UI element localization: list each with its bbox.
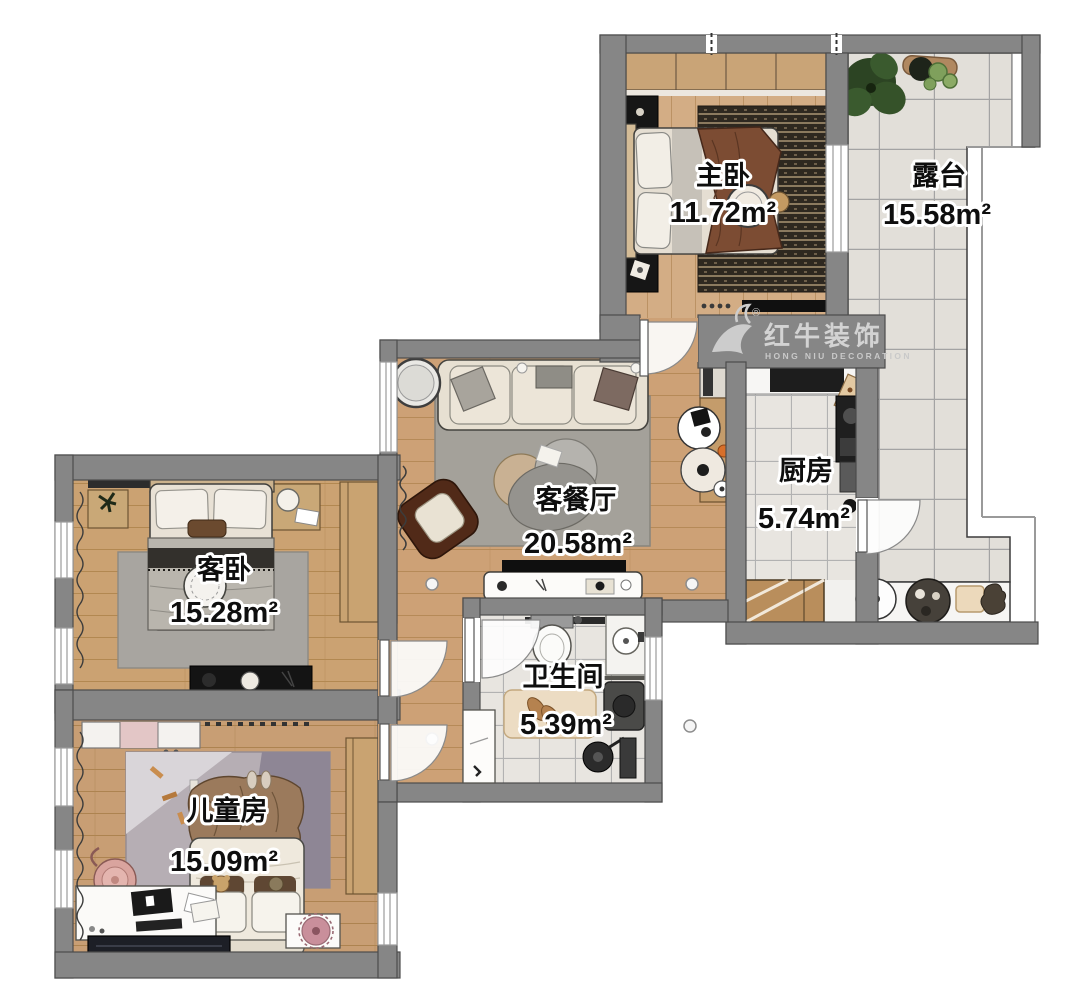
round-side-table — [906, 579, 950, 623]
area-kitchen: 5.74m² — [758, 503, 850, 535]
door-leaf — [640, 320, 648, 376]
wall-children-left — [55, 690, 73, 978]
wall-children-bottom — [55, 952, 400, 978]
sink — [606, 615, 645, 675]
logo-subtext: HONG NIU DECORATION — [765, 351, 912, 361]
wardrobe-strip — [346, 738, 378, 894]
window-children-left-2 — [55, 850, 73, 908]
door-leaf — [465, 618, 474, 682]
area-master-bedroom: 11.72m² — [670, 197, 777, 229]
riser-marker-2 — [831, 33, 842, 55]
area-guest-bedroom: 15.28m² — [170, 597, 278, 629]
wall-master-left — [600, 35, 626, 332]
wardrobe-strip — [340, 482, 378, 622]
window-bath-right — [645, 637, 662, 700]
wall-terrace-right — [1022, 35, 1040, 147]
wall-bath-top — [463, 598, 662, 615]
window-children-right — [378, 893, 397, 945]
wall-kitchen-right-upper — [856, 368, 878, 498]
window-living-left — [380, 362, 397, 452]
nightstand-left — [88, 490, 128, 528]
wall-kitchen-left — [726, 362, 746, 644]
half-wall — [598, 676, 645, 680]
bath-side-cabinet — [463, 710, 495, 783]
desk — [76, 886, 219, 940]
tv-console — [484, 560, 642, 600]
window-children-left-1 — [55, 748, 73, 806]
pillow — [636, 192, 673, 249]
logo-text: 红牛装饰 — [764, 321, 884, 351]
area-bathroom: 5.39m² — [520, 709, 612, 741]
pink-cushion-corner — [286, 914, 340, 948]
wall-guest-top — [55, 455, 400, 480]
wall-hall-bottom — [397, 783, 662, 802]
wall-south-stub — [662, 600, 728, 622]
wall-bottom-long — [726, 622, 1038, 644]
planter — [392, 359, 440, 407]
kitchen-lower-cabinet — [746, 580, 824, 622]
floor-plan-svg: ® 红牛装饰 HONG NIU DECORATION 主卧 11.72m² 露台… — [0, 0, 1092, 1000]
pillow — [636, 132, 673, 189]
wall-shared-mid — [55, 690, 400, 720]
label-children-room: 儿童房 — [187, 795, 268, 826]
area-terrace: 15.58m² — [883, 199, 991, 231]
label-kitchen: 厨房 — [779, 456, 833, 486]
wall-tv — [88, 480, 154, 488]
riser-marker-1 — [706, 33, 717, 55]
wall-top — [600, 35, 1040, 53]
wall-living-top — [380, 340, 642, 358]
label-living-dining: 客餐厅 — [536, 484, 617, 515]
range-hood — [770, 368, 844, 392]
window-master-right — [826, 145, 848, 252]
door-leaf — [380, 724, 389, 780]
window-guest-left-1 — [55, 522, 73, 578]
tv — [502, 560, 626, 572]
wall-children-right — [378, 802, 397, 978]
floor-plan: ® 红牛装饰 HONG NIU DECORATION 主卧 11.72m² 露台… — [0, 0, 1092, 1000]
door-leaf — [858, 500, 867, 552]
label-guest-bedroom: 客卧 — [197, 554, 251, 585]
accent-pillow — [188, 520, 226, 537]
area-children-room: 15.09m² — [170, 846, 278, 878]
registered-mark: ® — [752, 307, 760, 319]
nightstand-right — [268, 484, 320, 530]
label-bathroom: 卫生间 — [523, 662, 604, 692]
area-living-dining: 20.58m² — [524, 528, 632, 560]
label-terrace: 露台 — [912, 160, 966, 191]
floor-cushion — [956, 586, 984, 612]
label-master-bedroom: 主卧 — [696, 161, 750, 191]
sofa-tray — [536, 366, 572, 388]
door-leaf — [380, 640, 389, 696]
window-guest-left-2 — [55, 628, 73, 684]
sofa — [438, 360, 648, 430]
